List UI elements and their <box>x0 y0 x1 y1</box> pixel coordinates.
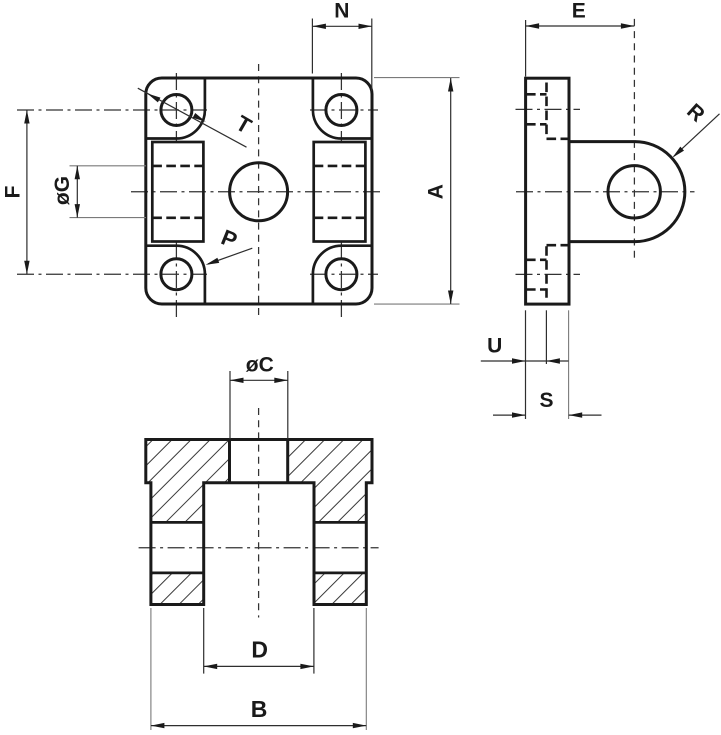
svg-text:A: A <box>425 184 448 199</box>
svg-text:E: E <box>572 0 586 22</box>
svg-text:øG: øG <box>51 176 74 205</box>
svg-text:F: F <box>1 185 24 198</box>
svg-text:øC: øC <box>246 354 274 377</box>
svg-text:D: D <box>251 637 268 663</box>
svg-text:N: N <box>334 0 349 22</box>
svg-text:S: S <box>539 389 553 412</box>
svg-text:U: U <box>487 334 502 357</box>
svg-text:B: B <box>251 696 268 722</box>
